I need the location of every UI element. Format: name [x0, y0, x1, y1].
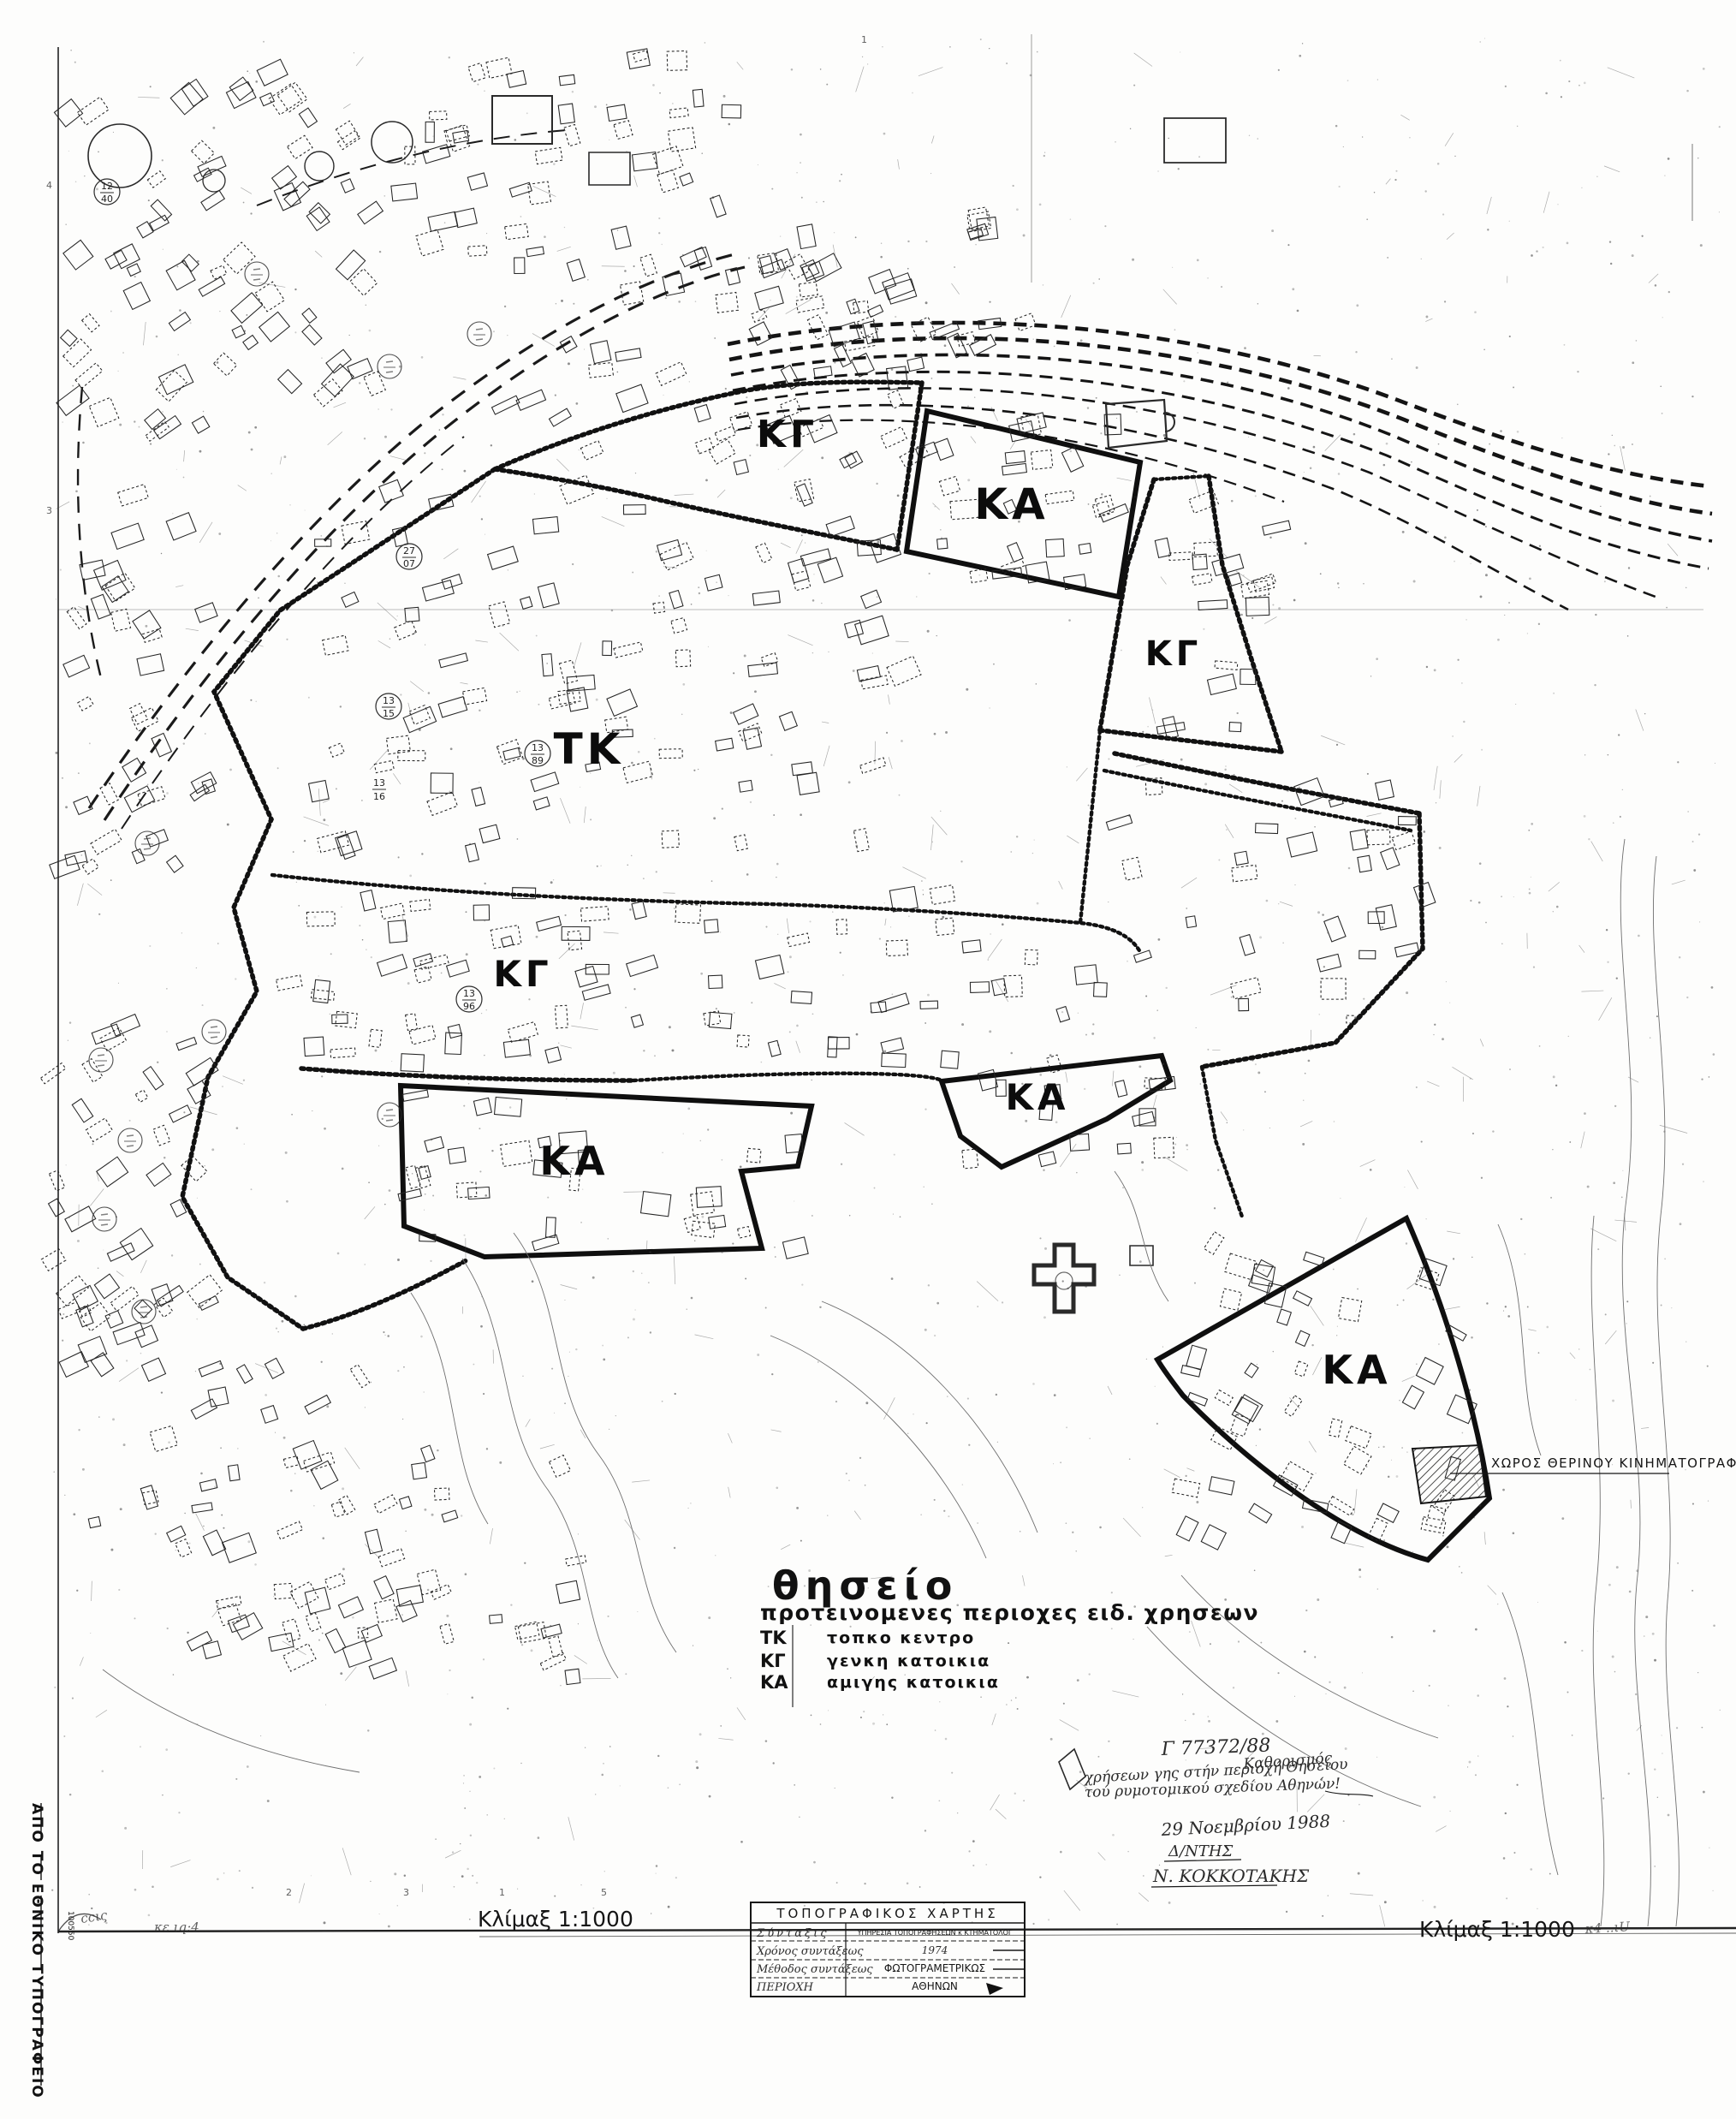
pennant-symbol — [1059, 1749, 1085, 1789]
grid-digit-left: 3 — [46, 505, 52, 516]
svg-text:27: 27 — [403, 545, 415, 557]
block-marker: 13 16 — [372, 777, 386, 802]
church-cross — [1034, 1245, 1153, 1312]
dashed-road — [78, 130, 745, 829]
topographic-map: 12 40 27 07 13 15 13 96 13 89 13 — [0, 0, 1736, 2119]
zone-label-kg-middle: ΚΓ — [493, 953, 552, 995]
zone-label-kg-top: ΚΓ — [757, 413, 818, 456]
printer-imprint: ΑΠΟ ΤΟ ΕΘΝΙΚΟ ΤΥΠΟΓΡΑΦΕΙΟ — [28, 1803, 45, 2099]
scanned-map-sheet: 12 40 27 07 13 15 13 96 13 89 13 — [0, 0, 1736, 2119]
top-tick: 1 — [861, 34, 867, 45]
zone-label-ka-left: ΚΑ — [539, 1138, 609, 1184]
legend-subtitle: προτεινομενες περιοχες ειδ. χρησεων — [760, 1600, 1259, 1625]
legend: θησείο προτεινομενες περιοχες ειδ. χρησε… — [760, 1562, 1259, 1707]
svg-text:40: 40 — [101, 193, 113, 205]
block-marker: 13 89 — [525, 741, 550, 766]
gas-holder-circle — [88, 124, 152, 187]
legend-code-ka: ΚΑ — [760, 1672, 788, 1693]
zone-boundaries — [182, 382, 1489, 1560]
grid-digit: 3 — [403, 1887, 409, 1898]
title-block: ΤΟΠΟΓΡΑΦΙΚΟΣ ΧΑΡΤΗΣ Σύνταξις ΥΠΗΡΕΣΙΑ ΤΟ… — [751, 1902, 1025, 1997]
svg-text:89: 89 — [532, 755, 544, 766]
note-date: 29 Νοεμβρίου 1988 — [1160, 1811, 1331, 1840]
block-marker: 27 07 — [396, 544, 422, 569]
tb-row2-label: Χρόνος συντάξεως — [756, 1945, 864, 1958]
title-block-title: ΤΟΠΟΓΡΑΦΙΚΟΣ ΧΑΡΤΗΣ — [776, 1906, 998, 1921]
grid-digit: 2 — [286, 1887, 292, 1898]
basilica-building — [1106, 400, 1174, 448]
sheet-code: 100550 — [66, 1911, 74, 1941]
block-markers: 12 40 27 07 13 15 13 96 13 89 13 — [94, 179, 550, 1012]
svg-text:96: 96 — [463, 1001, 475, 1012]
svg-text:15: 15 — [383, 708, 395, 719]
signer-role: Δ/ΝΤΗΣ — [1168, 1842, 1234, 1860]
scale-right: Κλίμαξ 1:1000 — [1419, 1917, 1575, 1942]
scale-left: Κλίμαξ 1:1000 — [478, 1907, 633, 1932]
grid-digit-left: 4 — [46, 180, 52, 191]
title-block-arrow-mark — [986, 1983, 1003, 1995]
zone-label-ka-bottom-right: ΚΑ — [1322, 1347, 1391, 1393]
zone-label-ka-middle: ΚΑ — [1005, 1076, 1069, 1118]
svg-text:13: 13 — [383, 695, 395, 706]
large-building — [492, 96, 552, 144]
legend-label-kg: γενκη κατοικια — [827, 1652, 990, 1670]
contour-lines — [103, 839, 1679, 1926]
block-marker: 13 96 — [456, 986, 482, 1012]
svg-text:13: 13 — [463, 988, 475, 999]
block-marker: 13 15 — [376, 693, 401, 719]
zone-label-kg-right: ΚΓ — [1145, 634, 1202, 674]
tb-row3-label: Μέθοδος συντάξεως — [756, 1963, 873, 1976]
zone-label-ka-top: ΚΑ — [974, 479, 1049, 529]
tb-row2-value: 1974 — [922, 1944, 948, 1956]
block-marker: 12 40 — [94, 179, 120, 205]
legend-label-tk: τοπκο κεντρο — [827, 1628, 975, 1647]
margin-note-right: κ4 ..ιU — [1584, 1919, 1631, 1937]
building-footprints — [40, 49, 1477, 1685]
grid-digit: 5 — [601, 1887, 607, 1898]
svg-text:13: 13 — [373, 777, 385, 789]
grid-digit: 1 — [499, 1887, 505, 1898]
margin-note-left-b: κε ιq:4 — [153, 1920, 199, 1935]
handwritten-notes: Γ 77372/88 Καθορισμός χρήσεων γης στήν π… — [1059, 1735, 1373, 1887]
cinema-label: ΧΩΡΟΣ ΘΕΡΙΝΟΥ ΚΙΝΗΜΑΤΟΓΡΑΦΟΥ — [1491, 1455, 1736, 1471]
tb-row4-value: ΑΘΗΝΩΝ — [912, 1980, 958, 1992]
margins: Κλίμαξ 1:1000 Κλίμαξ 1:1000 κ4 ..ιU ccις… — [28, 34, 1632, 2099]
zone-label-tk: ΤΚ — [554, 724, 625, 774]
legend-label-ka: αμιγης κατοικια — [827, 1673, 1000, 1692]
cinema-annotation: ΧΩΡΟΣ ΘΕΡΙΝΟΥ ΚΙΝΗΜΑΤΟΓΡΑΦΟΥ — [1450, 1455, 1736, 1473]
tb-row1-value: ΥΠΗΡΕΣΙΑ ΤΟΠΟΓΡΑΦΗΣΕΩΝ κ ΚΤΗΜΑΤΟΛΟΓ — [857, 1929, 1013, 1937]
cinema-plot-hatched — [1412, 1445, 1486, 1503]
tb-row4-label: ΠΕΡΙΟΧΗ — [756, 1981, 814, 1994]
block-number: 12 — [101, 181, 113, 192]
tb-row3-value: ΦΩΤΟΓΡΑΜΕΤΡΙΚΩΣ — [884, 1962, 985, 1974]
svg-text:13: 13 — [532, 742, 544, 753]
tb-row1-label: Σύνταξις — [756, 1927, 829, 1940]
legend-code-kg: ΚΓ — [760, 1651, 786, 1671]
margin-note-left-a: ccις — [80, 1908, 109, 1926]
svg-text:16: 16 — [373, 791, 385, 802]
legend-code-tk: ΤΚ — [760, 1628, 787, 1648]
railway-tracks — [728, 323, 1712, 610]
signature-name: Ν. ΚΟΚΚΟΤΑΚΗΣ — [1152, 1866, 1310, 1886]
svg-text:07: 07 — [403, 558, 415, 569]
printer-imprint-text: ΑΠΟ ΤΟ ΕΘΝΙΚΟ ΤΥΠΟΓΡΑΦΕΙΟ — [28, 1803, 45, 2099]
